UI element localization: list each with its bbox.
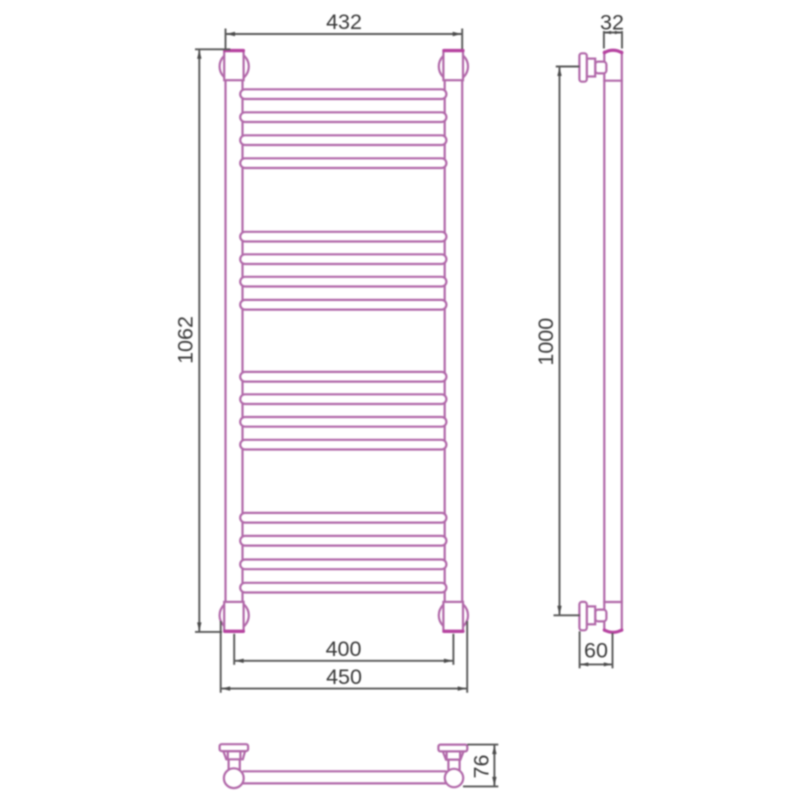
svg-text:1062: 1062	[173, 316, 197, 364]
svg-text:450: 450	[326, 665, 362, 689]
svg-text:400: 400	[326, 637, 362, 661]
svg-text:76: 76	[470, 755, 494, 779]
svg-text:1000: 1000	[534, 318, 558, 366]
svg-text:432: 432	[326, 10, 362, 34]
svg-text:32: 32	[600, 11, 624, 35]
svg-text:60: 60	[584, 639, 608, 663]
